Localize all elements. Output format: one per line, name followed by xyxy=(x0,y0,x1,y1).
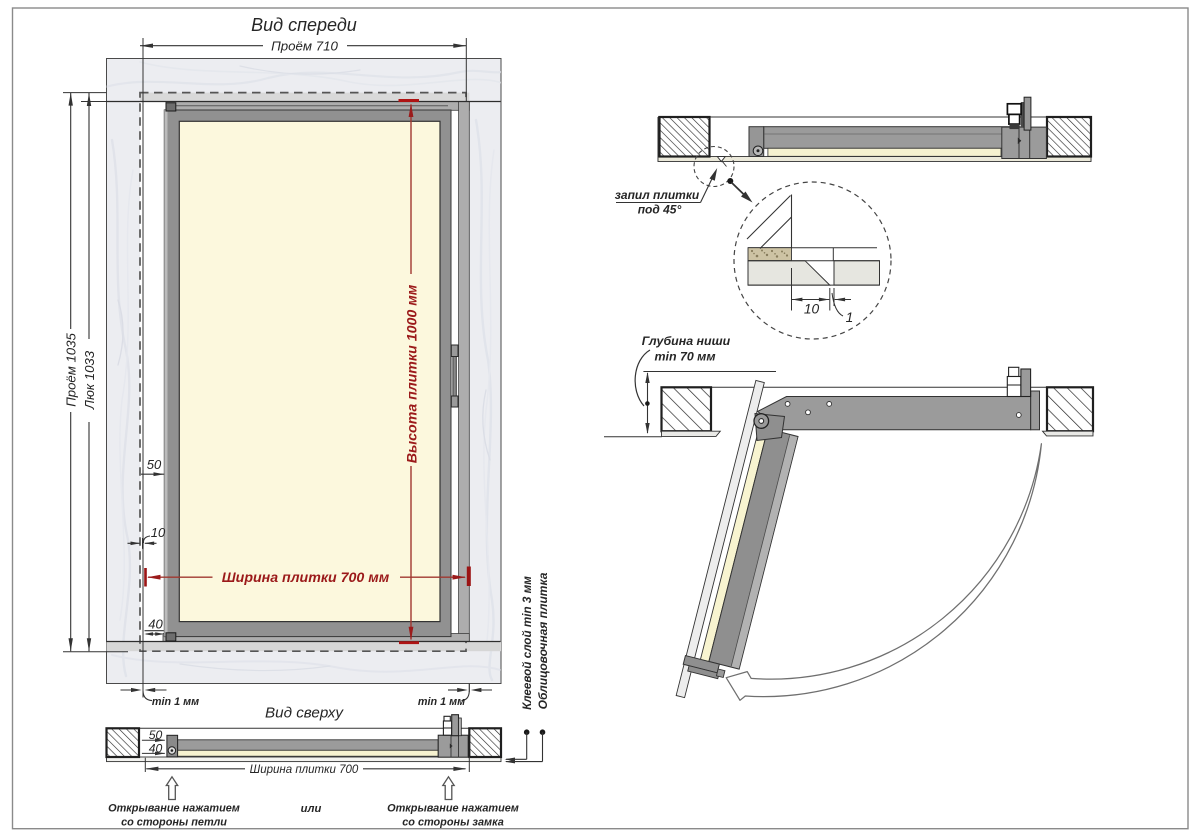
svg-text:50: 50 xyxy=(147,457,162,472)
svg-text:Вид сверху: Вид сверху xyxy=(265,705,344,722)
svg-text:Вид спереди: Вид спереди xyxy=(251,15,357,35)
svg-text:40: 40 xyxy=(148,616,163,631)
svg-text:со стороны замка: со стороны замка xyxy=(402,817,504,829)
svg-text:или: или xyxy=(301,803,322,815)
svg-text:Люк 1033: Люк 1033 xyxy=(82,350,97,410)
svg-text:Высота плитки 1000 мм: Высота плитки 1000 мм xyxy=(405,284,421,463)
svg-text:Открывание нажатием: Открывание нажатием xyxy=(108,803,240,815)
svg-text:Клеевой слой min 3 мм: Клеевой слой min 3 мм xyxy=(521,576,534,710)
svg-text:min 1 мм: min 1 мм xyxy=(152,696,199,708)
svg-text:запил плитки: запил плитки xyxy=(615,188,700,202)
svg-text:Проём 1035: Проём 1035 xyxy=(64,333,79,407)
svg-text:min 1 мм: min 1 мм xyxy=(418,696,465,708)
svg-text:10: 10 xyxy=(804,302,820,317)
svg-text:Ширина плитки 700 мм: Ширина плитки 700 мм xyxy=(222,570,390,586)
svg-text:Облицовочная плитка: Облицовочная плитка xyxy=(536,572,550,709)
svg-text:10: 10 xyxy=(151,525,166,540)
svg-text:1: 1 xyxy=(846,310,854,325)
svg-text:min 70 мм: min 70 мм xyxy=(654,350,715,364)
svg-text:Проём 710: Проём 710 xyxy=(271,39,338,54)
svg-text:под 45°: под 45° xyxy=(638,203,682,217)
svg-text:со стороны петли: со стороны петли xyxy=(121,817,227,829)
svg-text:Глубина ниши: Глубина ниши xyxy=(642,334,731,348)
svg-text:Ширина плитки 700: Ширина плитки 700 xyxy=(250,764,359,776)
svg-text:Открывание нажатием: Открывание нажатием xyxy=(387,803,519,815)
